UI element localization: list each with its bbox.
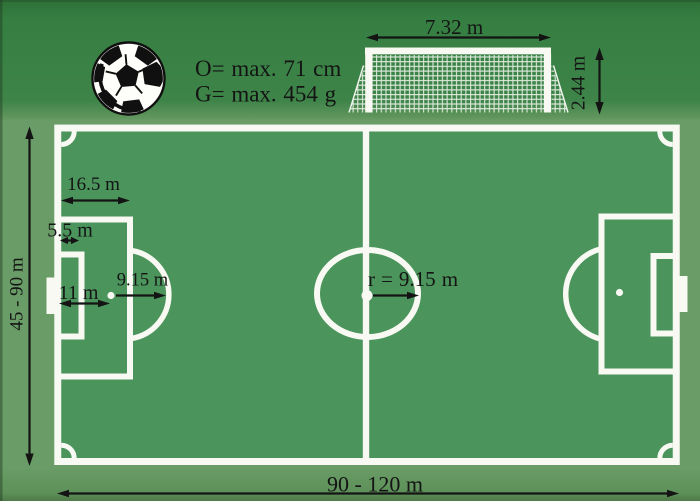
svg-text:r = 9.15 m: r = 9.15 m <box>368 267 458 291</box>
svg-text:11 m: 11 m <box>59 282 99 304</box>
svg-text:16.5 m: 16.5 m <box>67 174 120 195</box>
svg-text:G= max. 454 g: G= max. 454 g <box>195 82 337 107</box>
svg-text:9.15 m: 9.15 m <box>117 271 169 291</box>
svg-text:2.44 m: 2.44 m <box>569 56 590 110</box>
svg-text:45 - 90 m: 45 - 90 m <box>7 257 28 331</box>
svg-text:O= max. 71 cm: O= max. 71 cm <box>195 56 341 81</box>
svg-text:5.5 m: 5.5 m <box>47 220 93 242</box>
svg-text:90 - 120 m: 90 - 120 m <box>327 472 423 497</box>
svg-text:7.32 m: 7.32 m <box>425 15 483 39</box>
